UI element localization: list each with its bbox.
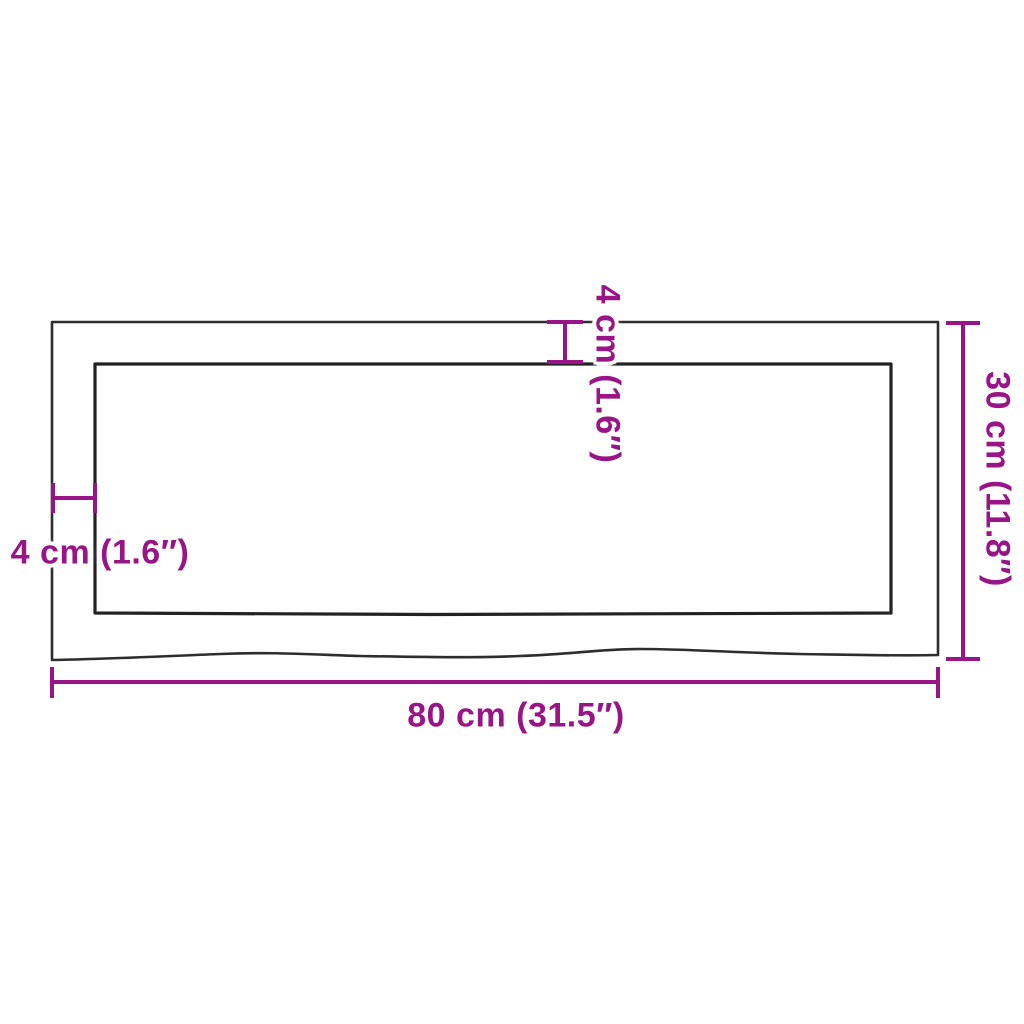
tabletop-inner-edge bbox=[95, 364, 891, 615]
dimension-diagram: 80 cm (31.5″) 30 cm (11.8″) 4 cm (1.6″) … bbox=[0, 0, 1024, 1024]
left-thickness-label: 4 cm (1.6″) bbox=[11, 534, 190, 573]
left-thickness-marker bbox=[53, 483, 95, 513]
top-thickness-label: 4 cm (1.6″) bbox=[588, 285, 627, 464]
width-label: 80 cm (31.5″) bbox=[407, 697, 624, 736]
height-dimension-line bbox=[946, 323, 980, 659]
height-label: 30 cm (11.8″) bbox=[978, 371, 1017, 587]
tabletop-outer-outline bbox=[52, 322, 938, 660]
width-dimension-line bbox=[52, 667, 938, 698]
dimension-lines bbox=[52, 322, 980, 698]
top-thickness-marker bbox=[547, 322, 583, 362]
diagram-drawing bbox=[0, 0, 1024, 1024]
